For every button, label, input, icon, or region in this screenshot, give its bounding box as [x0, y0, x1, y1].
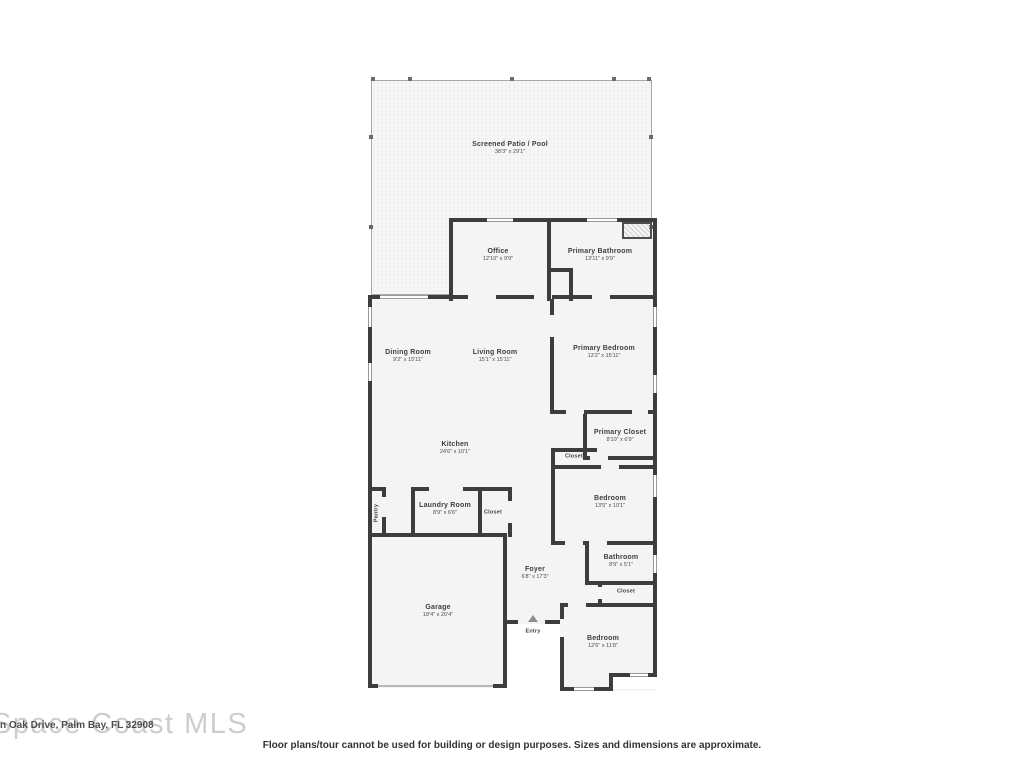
- wall: [496, 295, 534, 299]
- room-label-kitchen: Kitchen 24'6" x 10'1": [440, 440, 470, 456]
- wall: [552, 295, 592, 299]
- wall: [653, 497, 657, 555]
- wall: [550, 337, 554, 410]
- room-label-bedroom-bottom: Bedroom 12'6" x 11'8": [587, 634, 619, 650]
- wall: [551, 465, 555, 541]
- exterior-mask: [368, 688, 507, 693]
- window: [368, 363, 372, 381]
- room-dims: 12'6" x 11'8": [587, 643, 619, 650]
- wall: [583, 456, 590, 460]
- window: [368, 307, 372, 327]
- wall: [368, 684, 378, 688]
- wall: [368, 533, 507, 537]
- room-name: Primary Bedroom: [573, 344, 635, 353]
- room-label-primary-bathroom: Primary Bathroom 13'11" x 9'9": [568, 247, 632, 263]
- wall: [368, 327, 372, 363]
- room-dims: 15'1" x 15'11": [473, 357, 518, 364]
- wall: [584, 410, 632, 414]
- wall: [449, 218, 453, 301]
- wall: [551, 465, 601, 469]
- wall: [619, 465, 657, 469]
- disclaimer-text: Floor plans/tour cannot be used for buil…: [0, 740, 1024, 751]
- wall: [550, 299, 554, 315]
- room-name: Foyer: [521, 565, 548, 574]
- room-dims: 13'11" x 9'9": [568, 256, 632, 263]
- screen-enclosure-tick: [647, 77, 651, 81]
- window: [653, 475, 657, 497]
- room-name: Closet: [617, 588, 635, 595]
- room-name: Kitchen: [440, 440, 470, 449]
- room-dims: 8'10" x 6'9": [594, 437, 646, 444]
- wall: [653, 327, 657, 375]
- floorplan-image: Screened Patio / Pool 38'3" x 29'1" Offi…: [0, 0, 1024, 768]
- wall: [598, 581, 602, 587]
- room-dims: 24'6" x 10'1": [440, 449, 470, 456]
- window: [653, 307, 657, 327]
- room-dims: 8'9" x 6'6": [419, 510, 471, 517]
- screen-enclosure-tick: [369, 135, 373, 139]
- room-label-laundry-closet: Closet: [484, 509, 502, 516]
- room-dims: 13'2" x 15'11": [573, 353, 635, 360]
- entry-arrow-icon: [528, 615, 538, 622]
- room-name: Screened Patio / Pool: [472, 140, 548, 149]
- wall: [550, 410, 566, 414]
- wall: [368, 295, 372, 307]
- room-name: Laundry Room: [419, 501, 471, 510]
- room-label-bathroom: Bathroom 8'9" x 5'1": [604, 553, 639, 569]
- wall: [508, 487, 512, 501]
- room-label-primary-closet: Primary Closet 8'10" x 6'9": [594, 428, 646, 444]
- room-name: Bedroom: [594, 494, 626, 503]
- wall: [617, 218, 657, 222]
- wall: [551, 448, 597, 452]
- window: [487, 218, 513, 222]
- room-name: Garage: [423, 603, 453, 612]
- wall: [382, 517, 386, 537]
- room-name: Closet: [565, 453, 583, 460]
- room-name: Bedroom: [587, 634, 619, 643]
- wall: [551, 448, 555, 465]
- wall: [507, 620, 518, 624]
- wall: [560, 603, 564, 619]
- wall: [547, 218, 551, 301]
- wall: [610, 295, 657, 299]
- window: [587, 218, 617, 222]
- wall: [594, 687, 613, 691]
- room-name: Dining Room: [385, 348, 431, 357]
- wall: [585, 541, 589, 585]
- wall: [607, 541, 657, 545]
- window: [380, 295, 428, 299]
- room-label-office: Office 12'10" x 9'9": [483, 247, 513, 263]
- wall: [648, 410, 657, 414]
- screen-enclosure-tick: [369, 225, 373, 229]
- room-name: Primary Closet: [594, 428, 646, 437]
- wall: [585, 581, 657, 585]
- window: [630, 673, 648, 677]
- room-label-living-room: Living Room 15'1" x 15'11": [473, 348, 518, 364]
- room-label-pantry: Pantry: [373, 504, 380, 522]
- window: [653, 555, 657, 573]
- room-dims: 8'9" x 5'1": [604, 562, 639, 569]
- room-label-dining-room: Dining Room 9'2" x 15'11": [385, 348, 431, 364]
- room-dims: 38'3" x 29'1": [472, 149, 548, 156]
- room-name: Bathroom: [604, 553, 639, 562]
- room-name: Pantry: [373, 504, 380, 522]
- room-label-patio: Screened Patio / Pool 38'3" x 29'1": [472, 140, 548, 156]
- room-name: Living Room: [473, 348, 518, 357]
- room-dims: 18'4" x 20'4": [423, 612, 453, 619]
- room-dims: 12'10" x 9'9": [483, 256, 513, 263]
- room-label-garage: Garage 18'4" x 20'4": [423, 603, 453, 619]
- room-label-entry: Entry: [525, 628, 540, 635]
- wall: [449, 218, 487, 222]
- room-name: Primary Bathroom: [568, 247, 632, 256]
- wall: [382, 487, 386, 497]
- wall: [551, 541, 565, 545]
- room-label-bathroom-closet: Closet: [617, 588, 635, 595]
- screen-enclosure-tick: [649, 135, 653, 139]
- wall: [653, 573, 657, 673]
- screen-enclosure-tick: [612, 77, 616, 81]
- shower-pan: [622, 222, 652, 239]
- room-dims: 9'2" x 15'11": [385, 357, 431, 364]
- screen-enclosure-tick: [510, 77, 514, 81]
- address-watermark: n Oak Drive, Palm Bay, FL 32908: [0, 720, 154, 731]
- room-label-hall-closet: Closet: [565, 453, 583, 460]
- wall: [503, 533, 507, 688]
- wall: [648, 673, 657, 677]
- window: [653, 375, 657, 393]
- room-label-bedroom-middle: Bedroom 13'5" x 10'1": [594, 494, 626, 510]
- screen-enclosure-tick: [371, 77, 375, 81]
- room-label-laundry-room: Laundry Room 8'9" x 6'6": [419, 501, 471, 517]
- screen-enclosure-tick: [408, 77, 412, 81]
- wall: [493, 684, 507, 688]
- floor-plan: Screened Patio / Pool 38'3" x 29'1" Offi…: [368, 75, 660, 697]
- garage-door-line: [378, 685, 493, 687]
- room-dims: 13'5" x 10'1": [594, 503, 626, 510]
- wall: [560, 637, 564, 691]
- wall: [653, 393, 657, 475]
- wall: [463, 487, 512, 491]
- room-name: Closet: [484, 509, 502, 516]
- wall: [478, 487, 482, 537]
- room-name: Office: [483, 247, 513, 256]
- room-label-primary-bedroom: Primary Bedroom 13'2" x 15'11": [573, 344, 635, 360]
- wall: [653, 218, 657, 307]
- room-dims: 6'8" x 17'3": [521, 574, 548, 581]
- room-label-foyer: Foyer 6'8" x 17'3": [521, 565, 548, 581]
- wall: [411, 487, 415, 537]
- room-name: Entry: [525, 628, 540, 635]
- wall: [545, 620, 560, 624]
- wall: [508, 523, 512, 537]
- wall: [428, 295, 468, 299]
- window: [574, 687, 594, 691]
- wall: [608, 456, 657, 460]
- wall: [586, 603, 657, 607]
- exterior-mask: [613, 677, 657, 689]
